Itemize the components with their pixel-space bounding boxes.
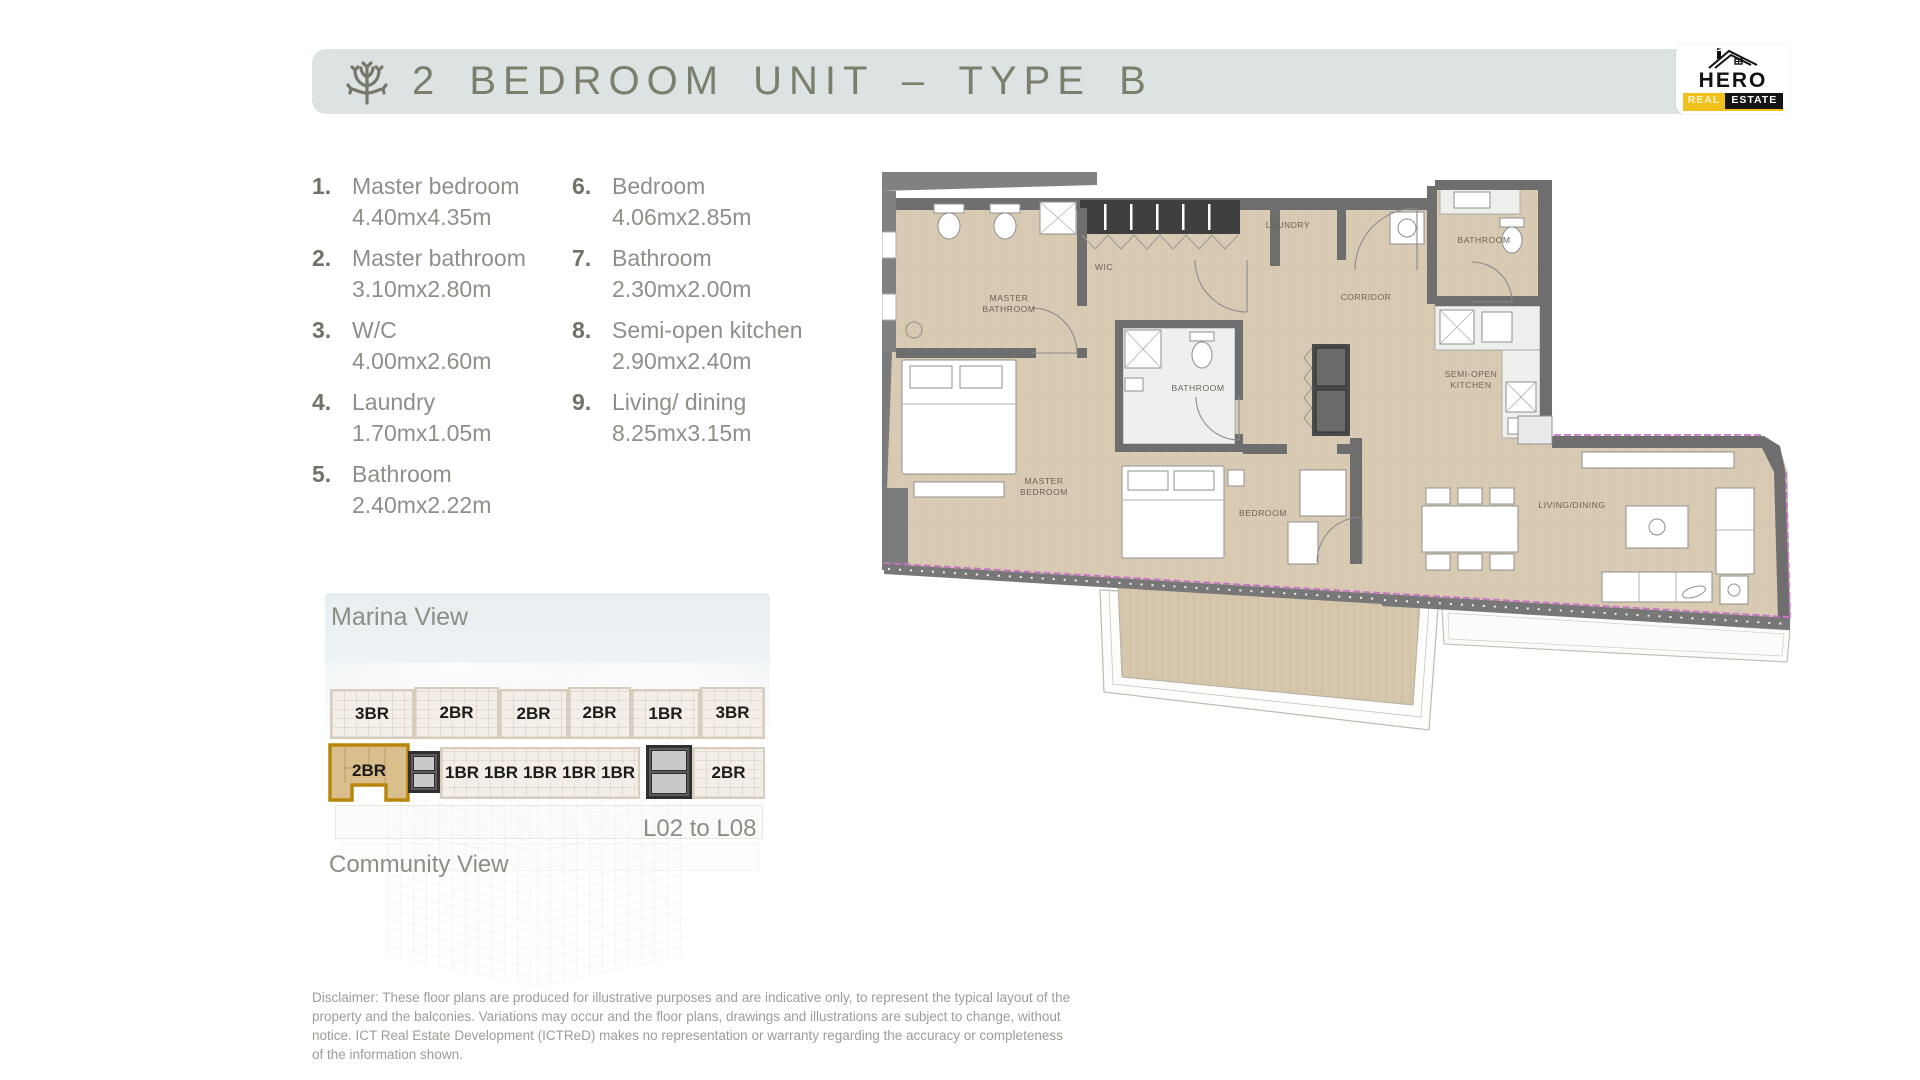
unit-2br: 2BR [692,747,765,799]
hero-logo: HERO REAL ESTATE [1676,44,1790,114]
svg-text:BEDROOM: BEDROOM [1020,487,1068,497]
label-master-bathroom: MASTER [990,293,1029,303]
list-item: 3. W/C4.00mx2.60m [312,315,562,377]
brochure-page: 2 BEDROOM UNIT – TYPE B HERO REAL ESTATE… [0,0,1920,1080]
floor-plan: MASTER BATHROOM WIC LAUNDRY CORRIDOR BAT… [882,172,1792,792]
list-item: 7. Bathroom2.30mx2.00m [572,243,842,305]
label-corridor: CORRIDOR [1341,292,1392,302]
list-item: 5. Bathroom2.40mx2.22m [312,459,562,521]
page-title: 2 BEDROOM UNIT – TYPE B [412,59,1153,104]
label-bathroom-2: BATHROOM [1457,235,1510,245]
list-item: 1. Master bedroom4.40mx4.35m [312,171,562,233]
label-laundry: LAUNDRY [1266,220,1310,230]
disclaimer-text: Disclaimer: These floor plans are produc… [312,988,1074,1065]
building-key-plan: Marina View 3BR 2BR 2BR 2BR 1BR 3BR 2BR … [325,593,770,983]
room-list-column-1: 1. Master bedroom4.40mx4.35m 2. Master b… [312,171,562,531]
label-living-dining: LIVING/DINING [1538,500,1605,510]
levels-label: L02 to L08 [643,815,756,843]
header-bar: 2 BEDROOM UNIT – TYPE B [312,49,1782,114]
core-block [646,745,692,799]
list-item: 6. Bedroom4.06mx2.85m [572,171,842,233]
list-item: 4. Laundry1.70mx1.05m [312,387,562,449]
label-wic: WIC [1095,262,1113,272]
list-item: 9. Living/ dining8.25mx3.15m [572,387,842,449]
list-item: 8. Semi-open kitchen2.90mx2.40m [572,315,842,377]
highlighted-unit-label: 2BR [330,751,408,791]
logo-estate: ESTATE [1725,93,1783,111]
logo-name: HERO [1699,70,1768,91]
label-bathroom: BATHROOM [1171,383,1224,393]
house-roof-icon [1707,47,1759,69]
svg-text:KITCHEN: KITCHEN [1450,380,1491,390]
logo-real: REAL [1683,93,1726,111]
coral-tree-icon [344,59,390,105]
units-1br-strip: 1BR1BR1BR1BR1BR [440,747,640,799]
label-kitchen: SEMI-OPEN [1445,369,1498,379]
core-block [408,751,440,793]
svg-text:BATHROOM: BATHROOM [982,304,1035,314]
label-master-bedroom: MASTER [1025,476,1064,486]
list-item: 2. Master bathroom3.10mx2.80m [312,243,562,305]
room-list-column-2: 6. Bedroom4.06mx2.85m 7. Bathroom2.30mx2… [572,171,842,459]
label-bedroom: BEDROOM [1239,508,1287,518]
community-view-label: Community View [329,851,509,879]
